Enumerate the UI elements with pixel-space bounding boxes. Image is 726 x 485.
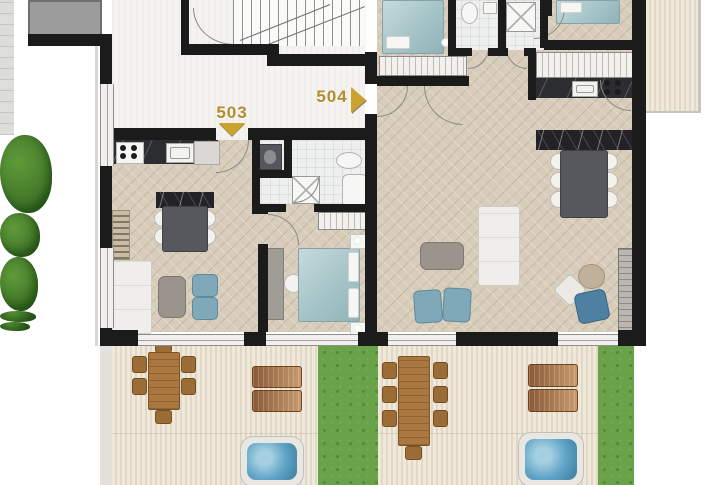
lamp	[353, 236, 362, 245]
coffee-table	[420, 242, 464, 270]
bedroom-wall	[258, 204, 268, 214]
floor-plan: 503 504	[0, 0, 726, 485]
shower	[506, 2, 536, 32]
kitchen-sink	[572, 81, 598, 97]
bedroom-wall	[377, 76, 469, 86]
shrub	[0, 135, 52, 213]
dining-table	[162, 206, 208, 252]
bookshelf	[112, 210, 130, 260]
coffee-table	[158, 276, 186, 318]
pillow	[560, 2, 582, 13]
staircase	[233, 0, 367, 46]
bathroom-wall	[448, 0, 456, 52]
unit-marker-503-icon[interactable]	[219, 123, 245, 136]
sofa	[478, 206, 520, 286]
party-wall	[365, 114, 377, 332]
neighbor-building	[28, 0, 102, 36]
sliding-door	[456, 332, 558, 346]
bedroom-wall	[544, 0, 552, 16]
outdoor-chair	[132, 356, 147, 373]
sun-lounger	[528, 364, 578, 387]
wall	[100, 44, 112, 84]
hot-tub-water	[247, 443, 297, 480]
kitchen-cabinet	[194, 141, 220, 165]
burner-icon	[120, 153, 126, 159]
desk	[266, 248, 284, 320]
outdoor-chair	[181, 356, 196, 373]
outdoor-chair	[181, 378, 196, 395]
burner-icon	[131, 145, 137, 151]
hallway-wall	[267, 54, 377, 66]
outdoor-chair	[155, 410, 172, 424]
armchair	[413, 289, 443, 324]
sliding-door	[100, 330, 138, 346]
bathroom-wall	[314, 204, 366, 212]
garden-path	[0, 0, 14, 135]
unit-marker-504-icon[interactable]	[351, 87, 366, 113]
bathroom-wall	[448, 48, 472, 56]
wardrobe	[379, 56, 467, 76]
shrub	[0, 213, 40, 257]
pouf	[192, 297, 218, 320]
armchair	[442, 287, 472, 322]
window	[100, 248, 114, 328]
wall	[632, 0, 646, 330]
wall	[248, 128, 367, 140]
burner-icon	[131, 153, 137, 159]
window	[388, 334, 456, 346]
balcony-deck	[646, 0, 698, 113]
hot-tub	[518, 432, 584, 485]
burner-icon	[604, 89, 610, 95]
burner-icon	[604, 80, 610, 86]
party-wall	[365, 52, 377, 84]
unit-label-503[interactable]: 503	[208, 103, 256, 123]
toilet	[461, 2, 478, 24]
bathroom-wall	[498, 0, 506, 48]
bathroom-wall	[284, 140, 292, 174]
pouf	[573, 288, 611, 325]
sun-lounger	[528, 389, 578, 412]
hot-tub	[240, 436, 304, 485]
lawn-right	[598, 346, 634, 485]
kitchen-island	[536, 130, 632, 150]
lawn-middle	[318, 346, 378, 485]
bedroom-wall	[258, 244, 268, 332]
shrub	[0, 257, 38, 311]
outdoor-chair	[405, 446, 422, 460]
burner-icon	[615, 80, 621, 86]
toilet	[336, 152, 362, 169]
window	[558, 334, 618, 346]
kitchen-wall	[528, 48, 536, 100]
bathroom-wall	[488, 48, 508, 56]
window	[266, 334, 358, 346]
window	[100, 84, 114, 166]
washing-machine	[258, 144, 282, 170]
balcony-edge	[646, 111, 701, 113]
kitchen-cabinet-row	[536, 52, 634, 78]
wall	[100, 166, 112, 248]
terrace-edge	[100, 346, 112, 485]
dining-table	[560, 150, 608, 218]
sliding-door	[244, 332, 266, 346]
outdoor-chair	[132, 378, 147, 395]
unit-label-504[interactable]: 504	[308, 87, 356, 107]
burner-icon	[120, 145, 126, 151]
outdoor-chair	[382, 362, 397, 379]
outdoor-chair	[433, 410, 448, 427]
outdoor-dining-table	[148, 352, 180, 410]
outdoor-chair	[382, 410, 397, 427]
pillow	[348, 252, 359, 282]
deck-seam	[112, 433, 318, 434]
shrub	[0, 311, 36, 322]
stairwell-wall	[181, 44, 279, 55]
burner-icon	[615, 89, 621, 95]
stairwell-wall	[181, 0, 189, 50]
sliding-door	[358, 332, 388, 346]
pillow	[386, 36, 410, 49]
outdoor-chair	[433, 362, 448, 379]
hot-tub-water	[525, 439, 577, 480]
outdoor-dining-table	[398, 356, 430, 446]
outdoor-chair	[382, 386, 397, 403]
washbasin	[483, 2, 497, 14]
window	[138, 334, 244, 346]
outdoor-chair	[433, 386, 448, 403]
shrub	[0, 322, 30, 331]
wall	[110, 128, 216, 140]
bedroom-wall	[544, 40, 634, 50]
sofa	[112, 260, 152, 334]
sun-lounger	[252, 390, 302, 412]
sliding-door	[618, 330, 646, 346]
pillow	[348, 288, 359, 318]
sun-lounger	[252, 366, 302, 388]
bathroom-wall	[252, 170, 292, 178]
building-outline	[95, 40, 98, 346]
kitchen-sink	[166, 143, 194, 163]
wardrobe	[318, 212, 368, 230]
balcony-railing	[698, 0, 701, 113]
pouf	[192, 274, 218, 297]
